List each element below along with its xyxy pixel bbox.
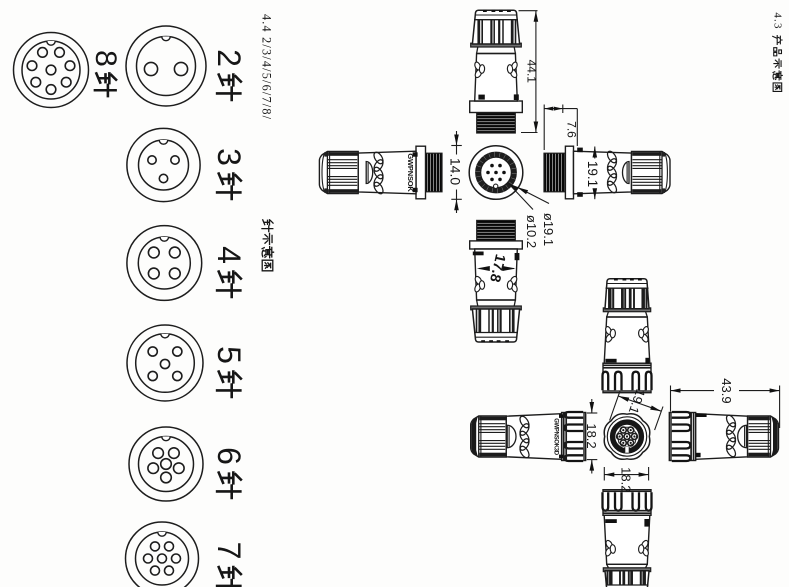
svg-text:ø19.1: ø19.1 [541, 213, 556, 246]
svg-text:8: 8 [89, 50, 122, 67]
svg-text:GWPNSOK: GWPNSOK [406, 153, 415, 192]
svg-text:7: 7 [211, 542, 247, 560]
svg-text:7.6: 7.6 [564, 121, 578, 138]
svg-text:18.2: 18.2 [584, 423, 599, 448]
svg-text:6: 6 [211, 447, 247, 465]
svg-text:18.2: 18.2 [619, 467, 634, 492]
svg-text:GWPNSOK3D: GWPNSOK3D [553, 418, 559, 456]
svg-text:19.1: 19.1 [585, 161, 600, 187]
svg-text:ø10.2: ø10.2 [524, 215, 539, 248]
svg-text:3: 3 [211, 148, 247, 166]
svg-text:44.1: 44.1 [525, 60, 539, 84]
svg-text:14.0: 14.0 [447, 158, 463, 185]
svg-text:4: 4 [211, 246, 247, 264]
svg-text:4.4 2/3/4/5/6/7/8/: 4.4 2/3/4/5/6/7/8/ [260, 14, 274, 120]
svg-text:2: 2 [211, 49, 247, 67]
svg-text:5: 5 [211, 346, 247, 364]
svg-text:43.9: 43.9 [719, 378, 734, 403]
svg-text:4.3: 4.3 [771, 12, 783, 29]
